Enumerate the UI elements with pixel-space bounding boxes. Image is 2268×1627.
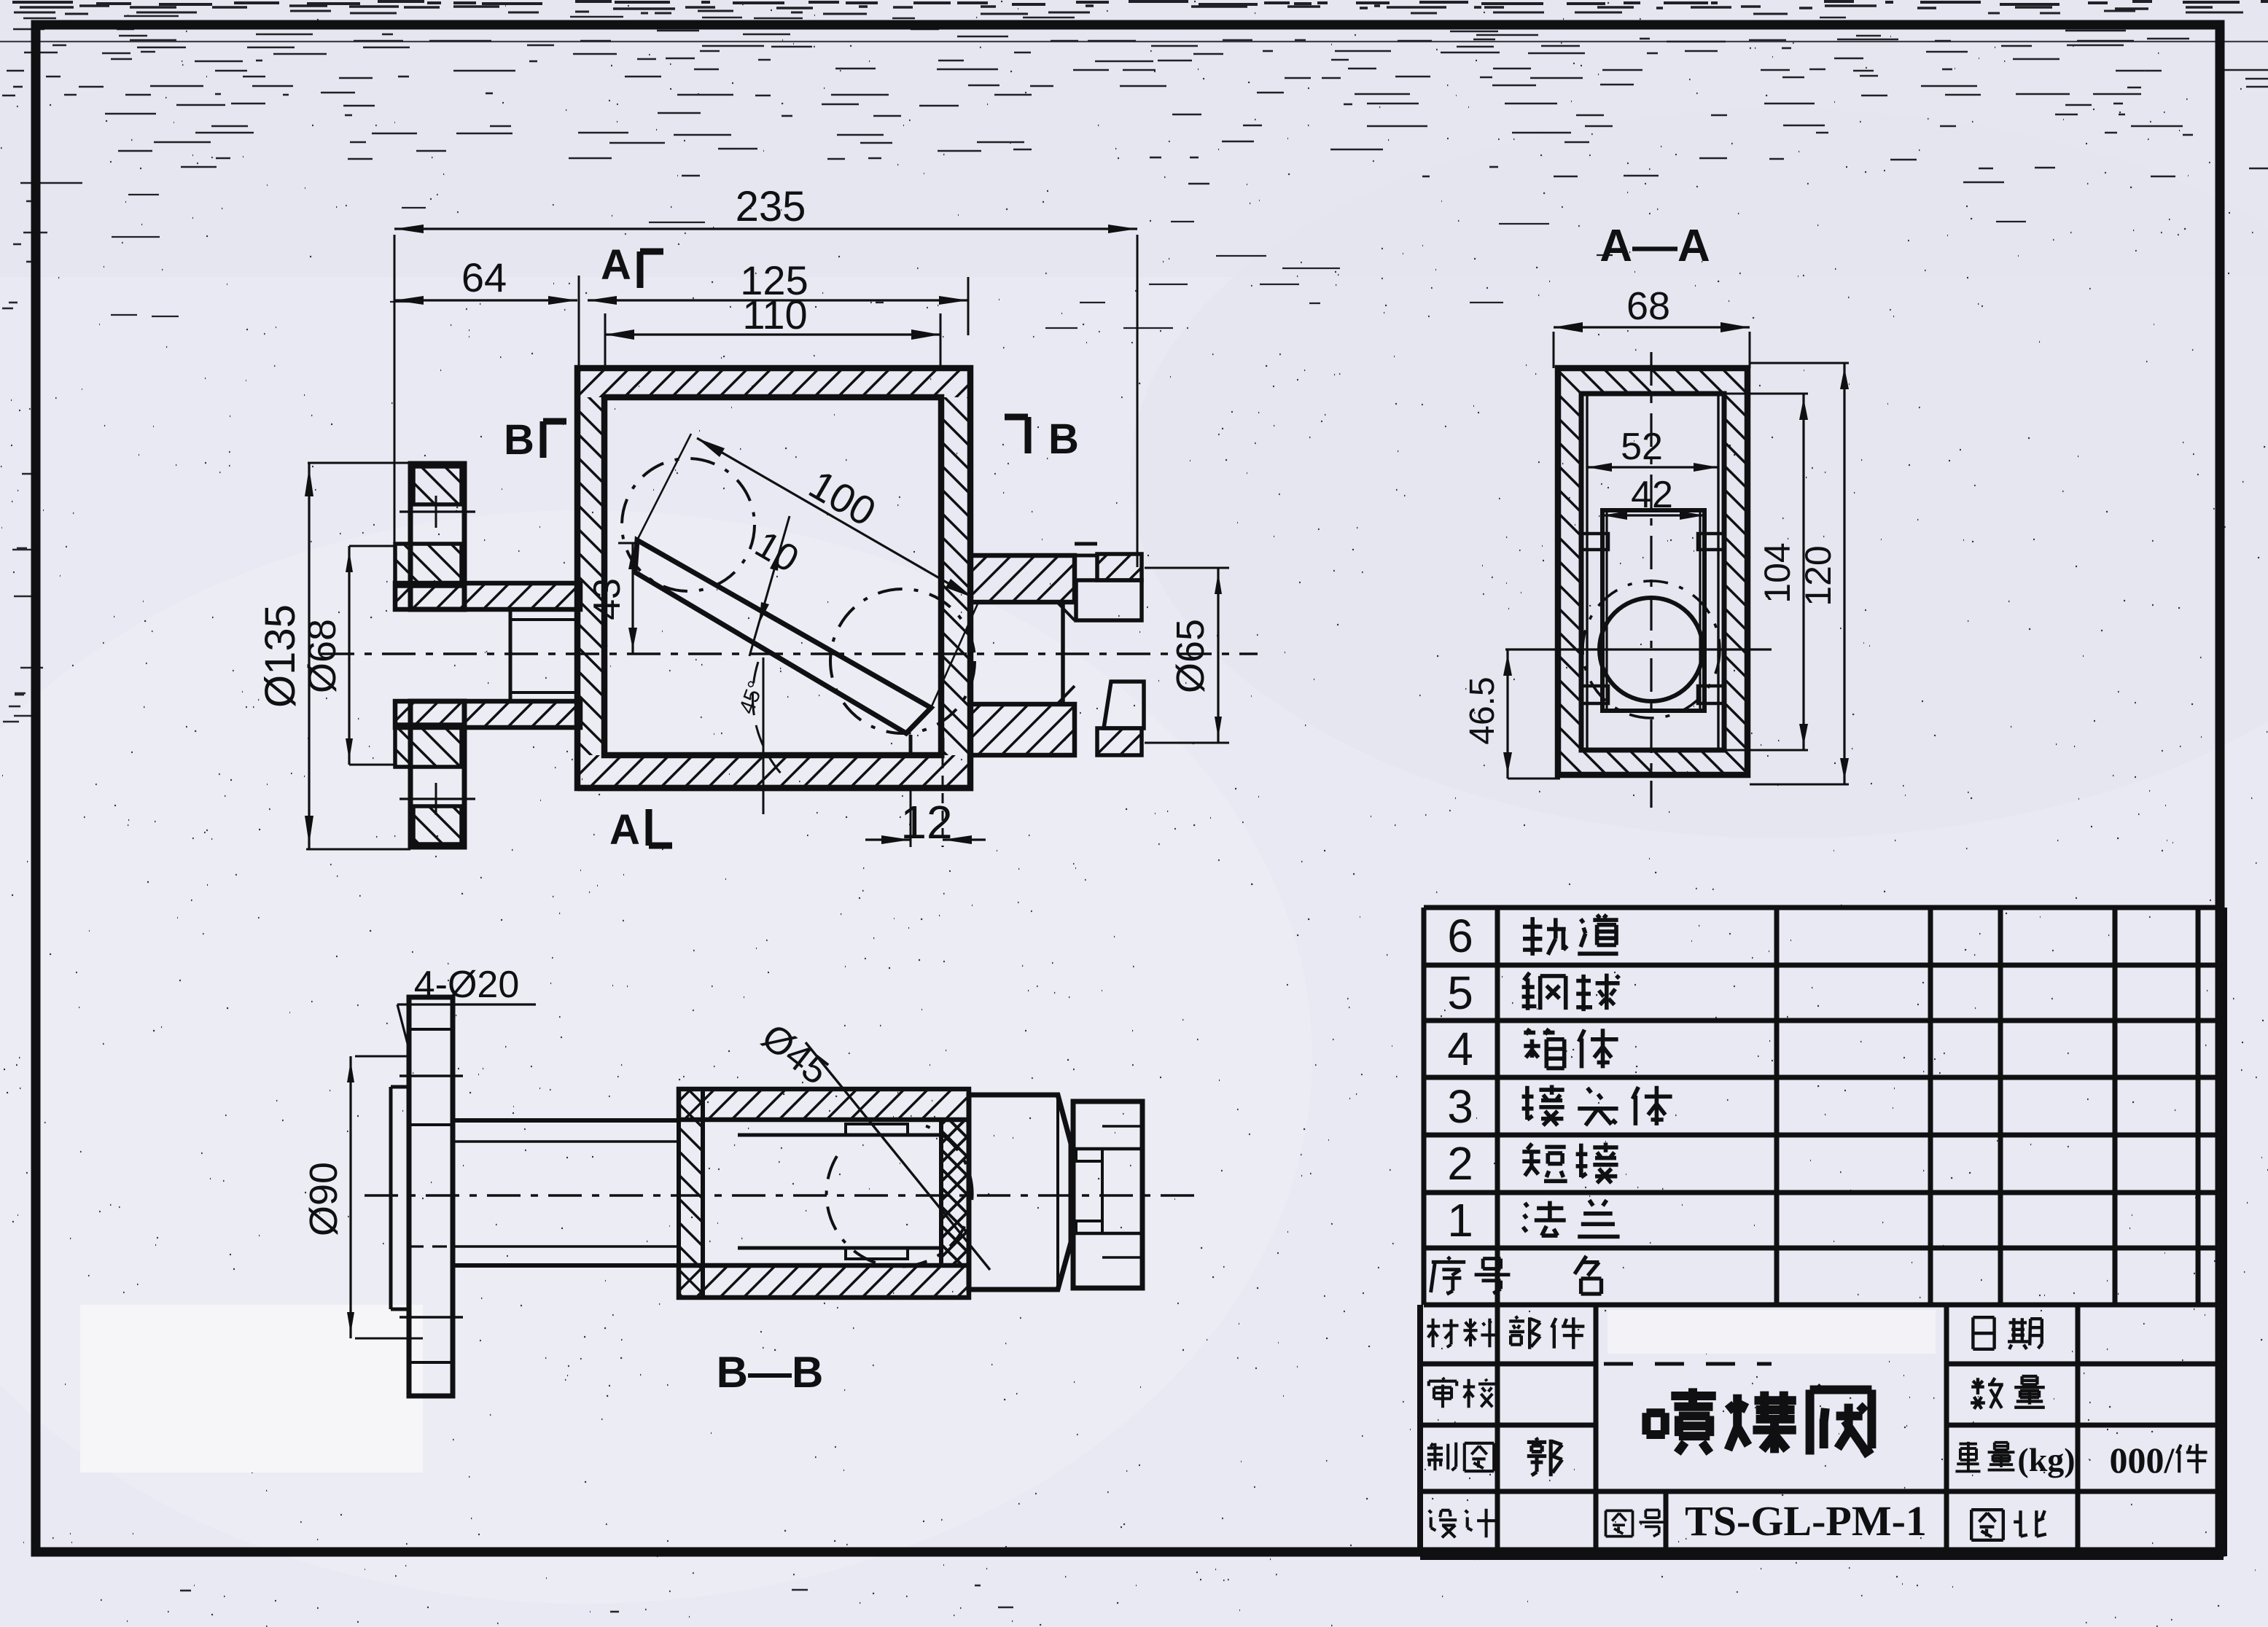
svg-text:B—B: B—B xyxy=(717,1348,824,1397)
svg-text:235: 235 xyxy=(736,183,806,230)
svg-text:A: A xyxy=(609,806,640,854)
svg-text:000/: 000/ xyxy=(2110,1440,2175,1480)
svg-text:(kg): (kg) xyxy=(2017,1441,2075,1478)
svg-text:2: 2 xyxy=(1447,1137,1473,1190)
svg-text:3: 3 xyxy=(1447,1080,1473,1133)
svg-text:Ø65: Ø65 xyxy=(1169,619,1212,693)
svg-text:Ø135: Ø135 xyxy=(257,604,304,708)
svg-text:68: 68 xyxy=(1626,284,1670,328)
svg-text:12: 12 xyxy=(900,796,952,848)
svg-text:104: 104 xyxy=(1757,542,1798,603)
svg-text:43: 43 xyxy=(586,578,628,620)
svg-text:B: B xyxy=(504,416,534,464)
svg-text:5: 5 xyxy=(1447,967,1473,1019)
svg-text:64: 64 xyxy=(461,254,507,300)
svg-text:110: 110 xyxy=(742,292,807,338)
svg-text:6: 6 xyxy=(1447,910,1473,962)
svg-text:Ø90: Ø90 xyxy=(302,1162,346,1236)
svg-text:4-Ø20: 4-Ø20 xyxy=(414,964,520,1006)
svg-text:120: 120 xyxy=(1798,545,1839,606)
svg-text:1: 1 xyxy=(1447,1194,1473,1246)
svg-text:A—A: A—A xyxy=(1599,221,1710,271)
svg-text:B: B xyxy=(1048,415,1079,463)
svg-text:52: 52 xyxy=(1621,426,1663,468)
svg-text:4: 4 xyxy=(1447,1023,1473,1075)
svg-text:Ø68: Ø68 xyxy=(300,619,344,693)
svg-text:46.5: 46.5 xyxy=(1463,676,1502,744)
svg-text:TS-GL-PM-1: TS-GL-PM-1 xyxy=(1685,1497,1927,1545)
svg-text:A: A xyxy=(601,241,631,289)
